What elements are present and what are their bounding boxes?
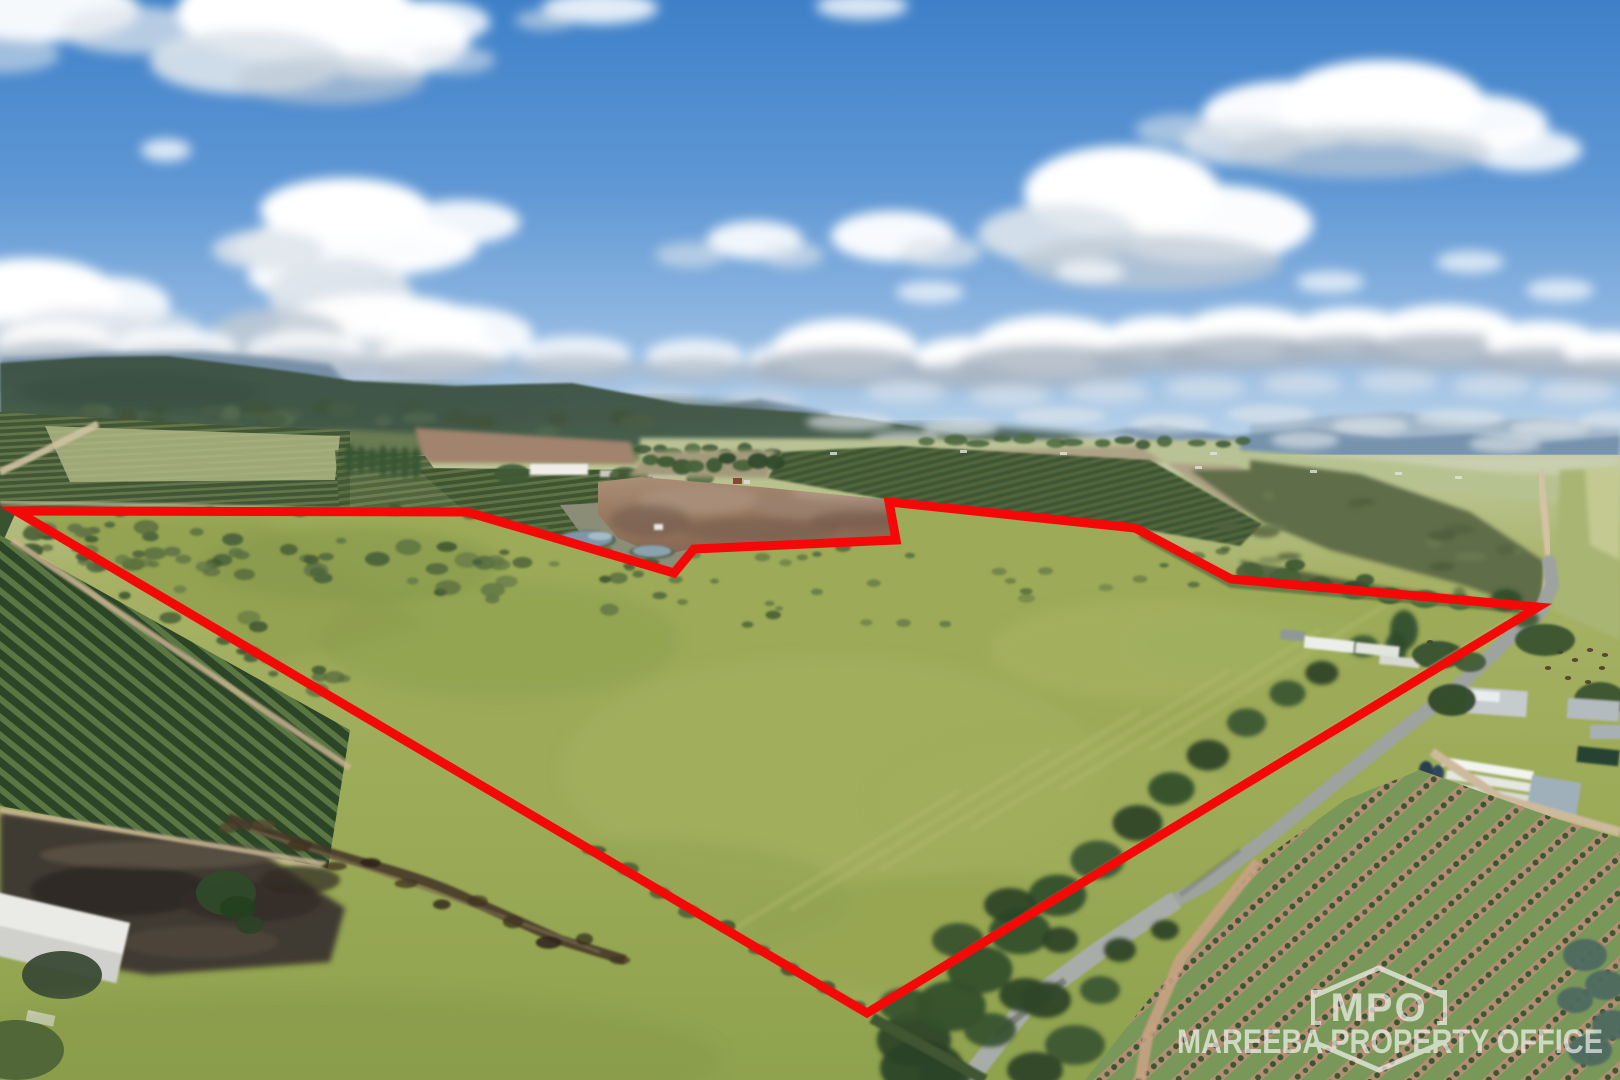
svg-text:MAREEBA PROPERTY OFFICE: MAREEBA PROPERTY OFFICE: [1177, 1023, 1603, 1061]
